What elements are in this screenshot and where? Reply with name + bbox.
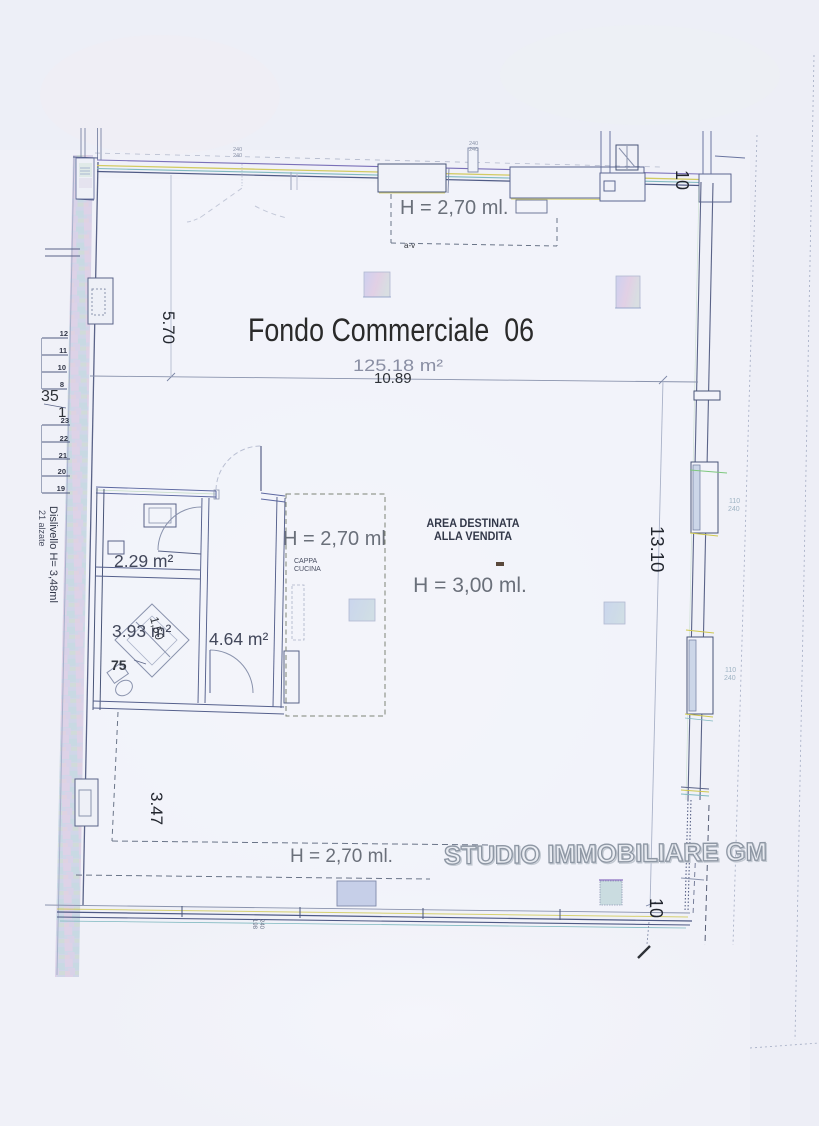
svg-text:5.70: 5.70 bbox=[159, 311, 178, 344]
svg-text:110: 110 bbox=[729, 498, 740, 505]
svg-text:10: 10 bbox=[646, 898, 666, 918]
svg-text:240: 240 bbox=[728, 506, 740, 513]
svg-text:110: 110 bbox=[725, 667, 736, 674]
svg-text:23: 23 bbox=[61, 416, 69, 425]
svg-text:11: 11 bbox=[59, 346, 67, 355]
svg-text:10.89: 10.89 bbox=[374, 370, 412, 387]
svg-text:AREA DESTINATA: AREA DESTINATA bbox=[427, 516, 520, 530]
svg-text:13.10: 13.10 bbox=[647, 526, 668, 572]
svg-text:240: 240 bbox=[469, 147, 478, 153]
svg-text:21 alzate: 21 alzate bbox=[37, 510, 47, 547]
svg-text:75: 75 bbox=[111, 657, 127, 673]
svg-text:198: 198 bbox=[251, 919, 257, 930]
svg-text:8: 8 bbox=[60, 380, 64, 389]
svg-text:22: 22 bbox=[60, 434, 68, 443]
svg-text:STUDIO IMMOBILIARE GM: STUDIO IMMOBILIARE GM bbox=[444, 838, 767, 870]
svg-text:CUCINA: CUCINA bbox=[294, 566, 321, 573]
svg-text:240: 240 bbox=[258, 919, 264, 930]
svg-text:H = 2,70 ml.: H = 2,70 ml. bbox=[290, 846, 393, 867]
svg-text:H = 3,00 ml.: H = 3,00 ml. bbox=[413, 574, 527, 597]
svg-text:H = 2,70 ml.: H = 2,70 ml. bbox=[400, 197, 508, 219]
svg-text:a-v: a-v bbox=[404, 241, 415, 250]
svg-text:2.29 m²: 2.29 m² bbox=[114, 551, 173, 571]
svg-text:H = 2,70 ml: H = 2,70 ml bbox=[283, 528, 386, 550]
svg-text:35: 35 bbox=[41, 388, 59, 405]
svg-text:3.47: 3.47 bbox=[147, 792, 166, 825]
svg-text:ALLA VENDITA: ALLA VENDITA bbox=[434, 529, 512, 543]
svg-text:10: 10 bbox=[58, 363, 66, 372]
svg-text:10: 10 bbox=[672, 170, 692, 190]
svg-text:20: 20 bbox=[58, 467, 66, 476]
svg-text:240: 240 bbox=[724, 675, 736, 682]
svg-text:Fondo Commerciale 06: Fondo Commerciale 06 bbox=[248, 312, 534, 348]
svg-text:Dislivello H= 3,48ml: Dislivello H= 3,48ml bbox=[47, 506, 59, 603]
svg-text:CAPPA: CAPPA bbox=[294, 558, 318, 565]
svg-text:21: 21 bbox=[59, 451, 67, 460]
svg-text:19: 19 bbox=[57, 484, 65, 493]
svg-text:240: 240 bbox=[233, 153, 242, 159]
svg-text:4.64 m²: 4.64 m² bbox=[209, 629, 268, 649]
svg-text:12: 12 bbox=[60, 329, 68, 338]
